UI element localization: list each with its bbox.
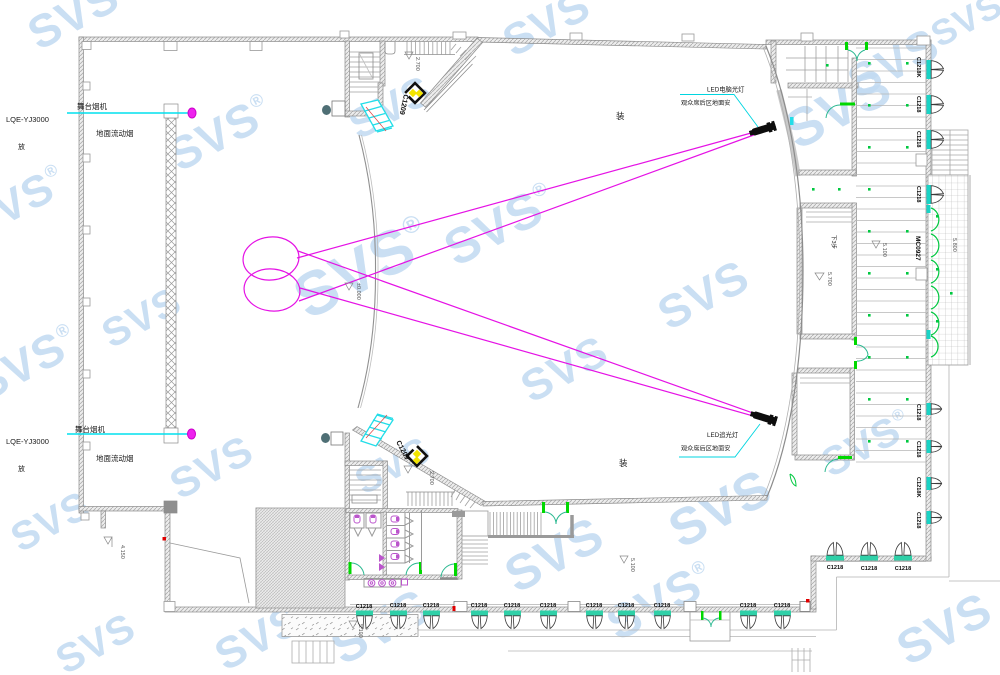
svg-text:放: 放 (18, 142, 25, 151)
svg-text:C1218: C1218 (356, 604, 372, 610)
svg-text:C1218: C1218 (618, 603, 634, 609)
svg-text:5.700: 5.700 (826, 272, 832, 286)
svg-text:C1218: C1218 (586, 603, 602, 609)
svg-text:C1218: C1218 (915, 512, 921, 528)
svg-text:C1218: C1218 (423, 603, 439, 609)
svg-text:下3步: 下3步 (830, 235, 837, 250)
svg-text:C1218: C1218 (390, 603, 406, 609)
svg-text:地面流动烟: 地面流动烟 (96, 453, 134, 463)
svg-text:4.150: 4.150 (119, 545, 125, 559)
svg-text:舞台烟机: 舞台烟机 (77, 101, 107, 111)
svg-text:2.700: 2.700 (428, 471, 434, 485)
svg-text:观众席后区地面安: 观众席后区地面安 (681, 99, 731, 107)
svg-text:C1218: C1218 (915, 404, 921, 420)
svg-text:C1218K: C1218K (915, 57, 921, 78)
svg-text:C1218: C1218 (915, 441, 921, 457)
svg-text:5.800: 5.800 (951, 238, 957, 252)
svg-text:C1218: C1218 (915, 186, 921, 202)
svg-text:装: 装 (619, 458, 628, 468)
svg-text:C1218: C1218 (861, 566, 877, 572)
svg-text:C1218: C1218 (504, 603, 520, 609)
svg-text:C1218: C1218 (895, 566, 911, 572)
svg-text:C1218: C1218 (827, 565, 843, 571)
svg-text:2.700: 2.700 (414, 57, 420, 71)
svg-text:5.100: 5.100 (881, 243, 887, 257)
svg-text:5.100: 5.100 (629, 558, 635, 572)
svg-text:LQE-YJ3000: LQE-YJ3000 (6, 115, 49, 124)
svg-text:5.100: 5.100 (357, 624, 363, 638)
svg-text:±0.000: ±0.000 (355, 283, 361, 300)
svg-text:C1218: C1218 (740, 603, 756, 609)
svg-text:LED电脑光灯: LED电脑光灯 (707, 85, 745, 94)
svg-text:C1218K: C1218K (915, 477, 921, 498)
svg-text:LQE-YJ3000: LQE-YJ3000 (6, 437, 49, 446)
svg-text:C1218: C1218 (654, 603, 670, 609)
svg-text:地面流动烟: 地面流动烟 (96, 128, 134, 138)
svg-text:放: 放 (18, 464, 25, 473)
svg-text:LED追光灯: LED追光灯 (707, 430, 739, 439)
svg-text:舞台烟机: 舞台烟机 (75, 424, 105, 434)
svg-text:C1218: C1218 (540, 603, 556, 609)
svg-text:C1218: C1218 (915, 131, 921, 147)
svg-text:MC0927: MC0927 (914, 236, 921, 261)
svg-text:装: 装 (616, 111, 625, 121)
svg-text:C1218: C1218 (774, 603, 790, 609)
svg-text:C1218: C1218 (471, 603, 487, 609)
svg-text:观众席后区地面安: 观众席后区地面安 (681, 445, 731, 453)
svg-text:C1218: C1218 (915, 96, 921, 112)
